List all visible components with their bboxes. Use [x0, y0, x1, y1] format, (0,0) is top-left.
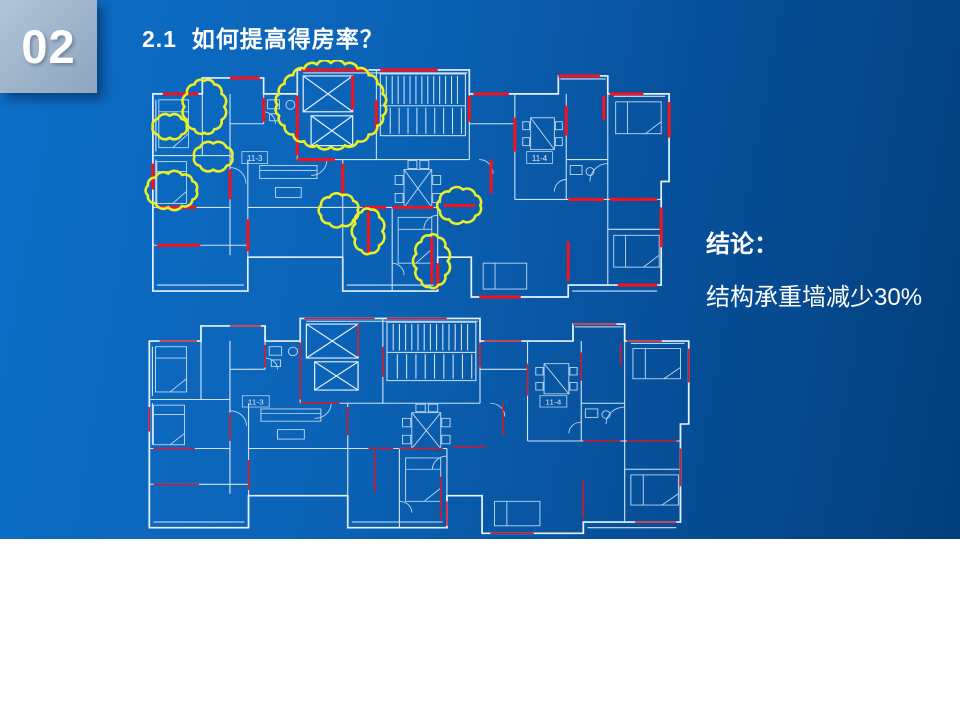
floorplan-drawing: 11-3 11-4	[153, 70, 669, 297]
floorplan-top: 11-3 11-4	[143, 60, 677, 303]
plan-elevators	[303, 76, 352, 146]
slide-title: 2.1 如何提高得房率？	[142, 20, 384, 54]
plan-unit-labels: 11-3 11-4	[242, 152, 553, 164]
revision-cloud	[153, 114, 187, 139]
plan-stairs	[380, 74, 465, 136]
unit-label: 11-4	[532, 154, 548, 163]
slide-background: 02 2.1 如何提高得房率？	[0, 0, 960, 539]
plan-furniture	[157, 100, 661, 289]
slide-footer	[0, 539, 960, 720]
conclusion-heading: 结论：	[706, 224, 922, 259]
revision-cloud	[276, 60, 387, 149]
revision-cloud	[182, 80, 226, 134]
plan-door-arcs	[230, 112, 608, 275]
chapter-number-box: 02	[0, 0, 97, 93]
revision-cloud	[194, 142, 233, 171]
floorplan-bottom	[139, 309, 697, 539]
unit-label: 11-3	[247, 154, 263, 163]
conclusion-block: 结论： 结构承重墙减少30%	[706, 224, 922, 312]
conclusion-text: 结构承重墙减少30%	[706, 277, 922, 312]
chapter-number: 02	[21, 19, 75, 74]
revision-cloud	[319, 193, 359, 227]
